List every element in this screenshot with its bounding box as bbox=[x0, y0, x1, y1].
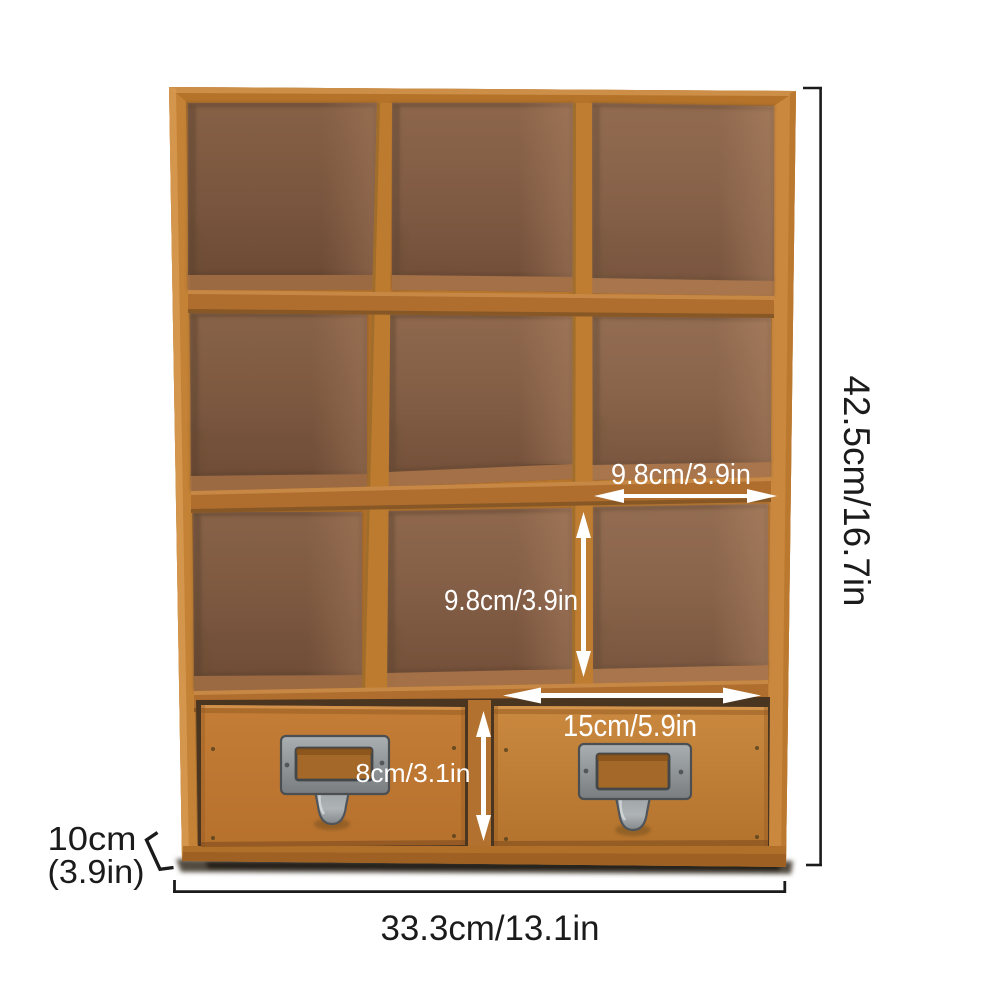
svg-text:42.5cm/16.7in: 42.5cm/16.7in bbox=[836, 376, 877, 607]
svg-text:10cm: 10cm bbox=[48, 820, 137, 857]
svg-text:9.8cm/3.9in: 9.8cm/3.9in bbox=[444, 585, 578, 617]
svg-text:9.8cm/3.9in: 9.8cm/3.9in bbox=[611, 459, 751, 491]
svg-text:8cm/3.1in: 8cm/3.1in bbox=[356, 758, 471, 788]
svg-text:15cm/5.9in: 15cm/5.9in bbox=[563, 708, 697, 743]
svg-text:33.3cm/13.1in: 33.3cm/13.1in bbox=[381, 909, 600, 948]
svg-text:(3.9in): (3.9in) bbox=[48, 853, 145, 890]
